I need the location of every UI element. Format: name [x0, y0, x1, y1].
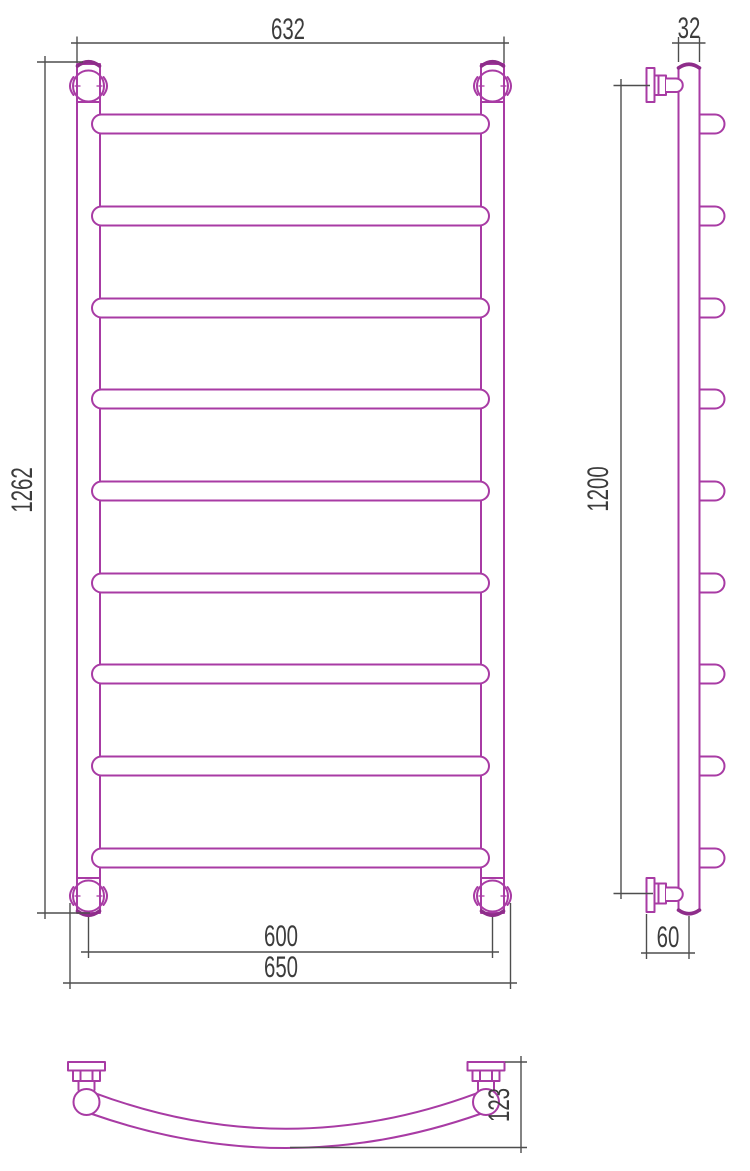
top-view: 123 — [68, 1056, 527, 1153]
bracket-ball — [70, 71, 107, 102]
rung — [92, 574, 489, 593]
front-rungs — [92, 115, 489, 868]
rung — [92, 757, 489, 776]
side-view: 32 1200 60 — [582, 12, 724, 959]
bracket-ball — [70, 881, 107, 912]
rung-stub — [700, 665, 725, 684]
dim-label-650: 650 — [264, 951, 298, 984]
dim-side-bracket-span: 1200 — [582, 79, 653, 899]
rung — [92, 665, 489, 684]
top-bracket-left — [68, 1062, 105, 1115]
dim-label-600: 600 — [264, 920, 298, 953]
dim-label-60: 60 — [657, 921, 680, 954]
rung — [92, 390, 489, 409]
side-wall-bracket-bottom — [647, 878, 683, 912]
rung-stub — [700, 115, 725, 134]
dim-side-wall-offset: 60 — [641, 914, 695, 959]
rung — [92, 482, 489, 501]
rung-stub — [700, 482, 725, 501]
bracket-ball — [474, 881, 511, 912]
side-tube — [679, 67, 700, 911]
rung — [92, 207, 489, 226]
dim-label-1262: 1262 — [6, 467, 39, 512]
dim-label-1200: 1200 — [582, 466, 615, 511]
dim-front-width-top: 632 — [71, 13, 509, 63]
rung-stub — [700, 574, 725, 593]
side-rung-stubs — [700, 115, 725, 868]
rung — [92, 115, 489, 134]
rung-stub — [700, 390, 725, 409]
rung-stub — [700, 299, 725, 318]
dim-side-tube-width: 32 — [672, 12, 706, 62]
dim-label-123: 123 — [483, 1088, 516, 1122]
dim-label-632: 632 — [271, 13, 305, 46]
drawing-canvas: 632 1262 600 650 — [0, 0, 750, 1166]
bracket-ball — [474, 71, 511, 102]
rung — [92, 299, 489, 318]
drawing-page: 632 1262 600 650 — [0, 0, 750, 1166]
top-curved-rail — [92, 1094, 480, 1149]
rung-stub — [700, 207, 725, 226]
dim-label-32: 32 — [678, 12, 701, 45]
side-end-caps — [679, 64, 700, 914]
side-wall-bracket-top — [647, 68, 683, 102]
rung-stub — [700, 849, 725, 868]
rung-stub — [700, 757, 725, 776]
front-view: 632 1262 600 650 — [6, 13, 517, 989]
rung — [92, 849, 489, 868]
